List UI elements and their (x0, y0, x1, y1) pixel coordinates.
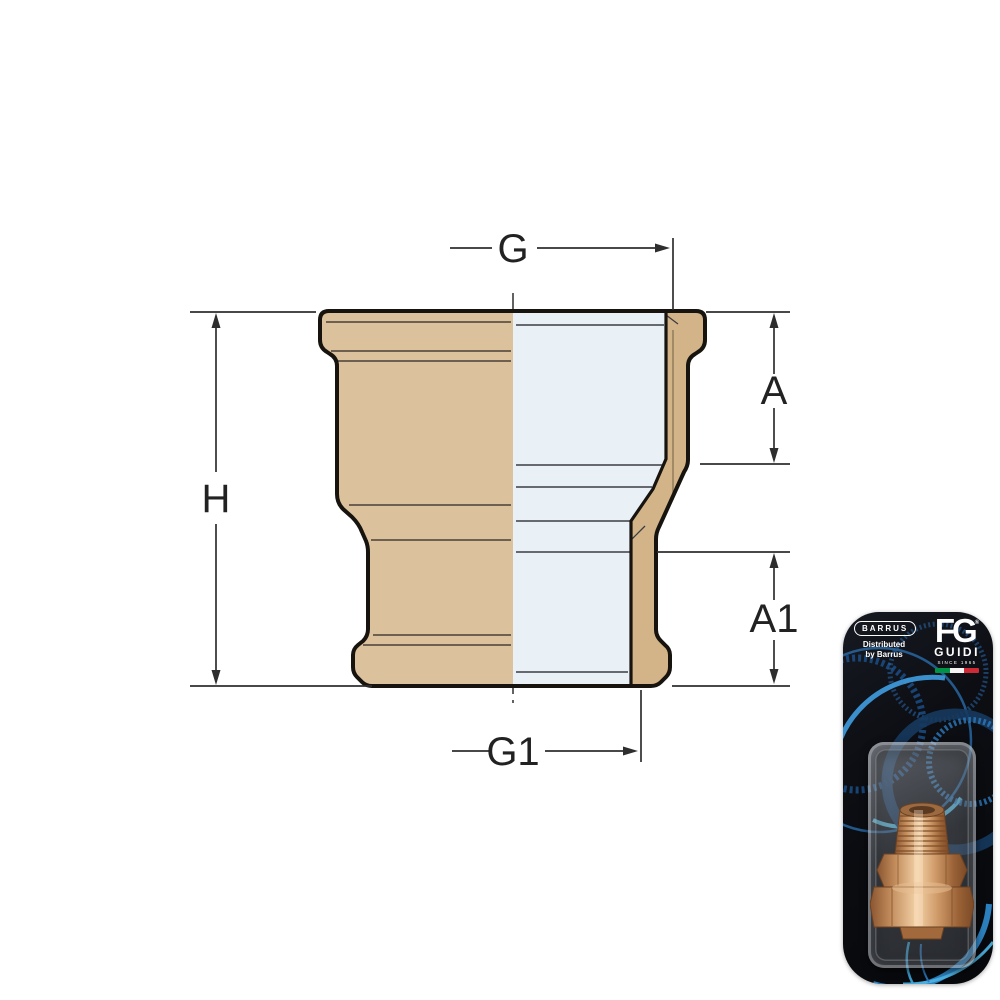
distributed-line2: by Barrus (843, 650, 925, 660)
dimension-h-arrowhead-bottom (212, 670, 221, 685)
dimension-g1-arrowhead (623, 747, 638, 756)
dimension-h-arrowhead-top (212, 313, 221, 328)
dimension-a-arrowhead-top (770, 313, 779, 328)
dimension-g1-label: G1 (486, 730, 539, 774)
dimension-g (450, 238, 673, 310)
barrus-logo: BARRUS (854, 621, 916, 636)
dimension-a-label: A (761, 369, 788, 413)
registered-mark: ® (975, 620, 979, 626)
guidi-since-text: SINCE 1965 (929, 660, 985, 665)
dimension-g-label: G (497, 227, 528, 271)
fg-monogram: FG® (929, 614, 985, 647)
distributed-by-text: Distributed by Barrus (843, 640, 925, 659)
flag-white-stripe (950, 668, 965, 673)
flag-green-stripe (935, 668, 950, 673)
product-blister-card: BARRUS Distributed by Barrus FG® GUIDI S… (843, 612, 993, 984)
dimension-g1 (452, 690, 641, 762)
fitting-left-half (320, 311, 513, 686)
dimension-a1-arrowhead-top (770, 553, 779, 568)
italy-flag (935, 668, 979, 673)
guidi-wordmark: GUIDI (929, 645, 985, 659)
fg-monogram-letters: FG (935, 612, 975, 649)
guidi-logo: FG® GUIDI SINCE 1965 (929, 614, 985, 673)
distributed-line1: Distributed (843, 640, 925, 650)
dimension-h-label: H (202, 477, 231, 521)
flag-red-stripe (964, 668, 979, 673)
dimension-a1-arrowhead-bottom (770, 669, 779, 684)
dimension-a-arrowhead-bottom (770, 448, 779, 463)
brass-fitting-photo (870, 800, 974, 940)
screenshot-canvas: G H A A1 (0, 0, 1000, 1000)
dimension-a1-label: A1 (750, 597, 799, 641)
dimension-g-arrowhead (655, 244, 670, 253)
blister-pack (868, 742, 976, 968)
